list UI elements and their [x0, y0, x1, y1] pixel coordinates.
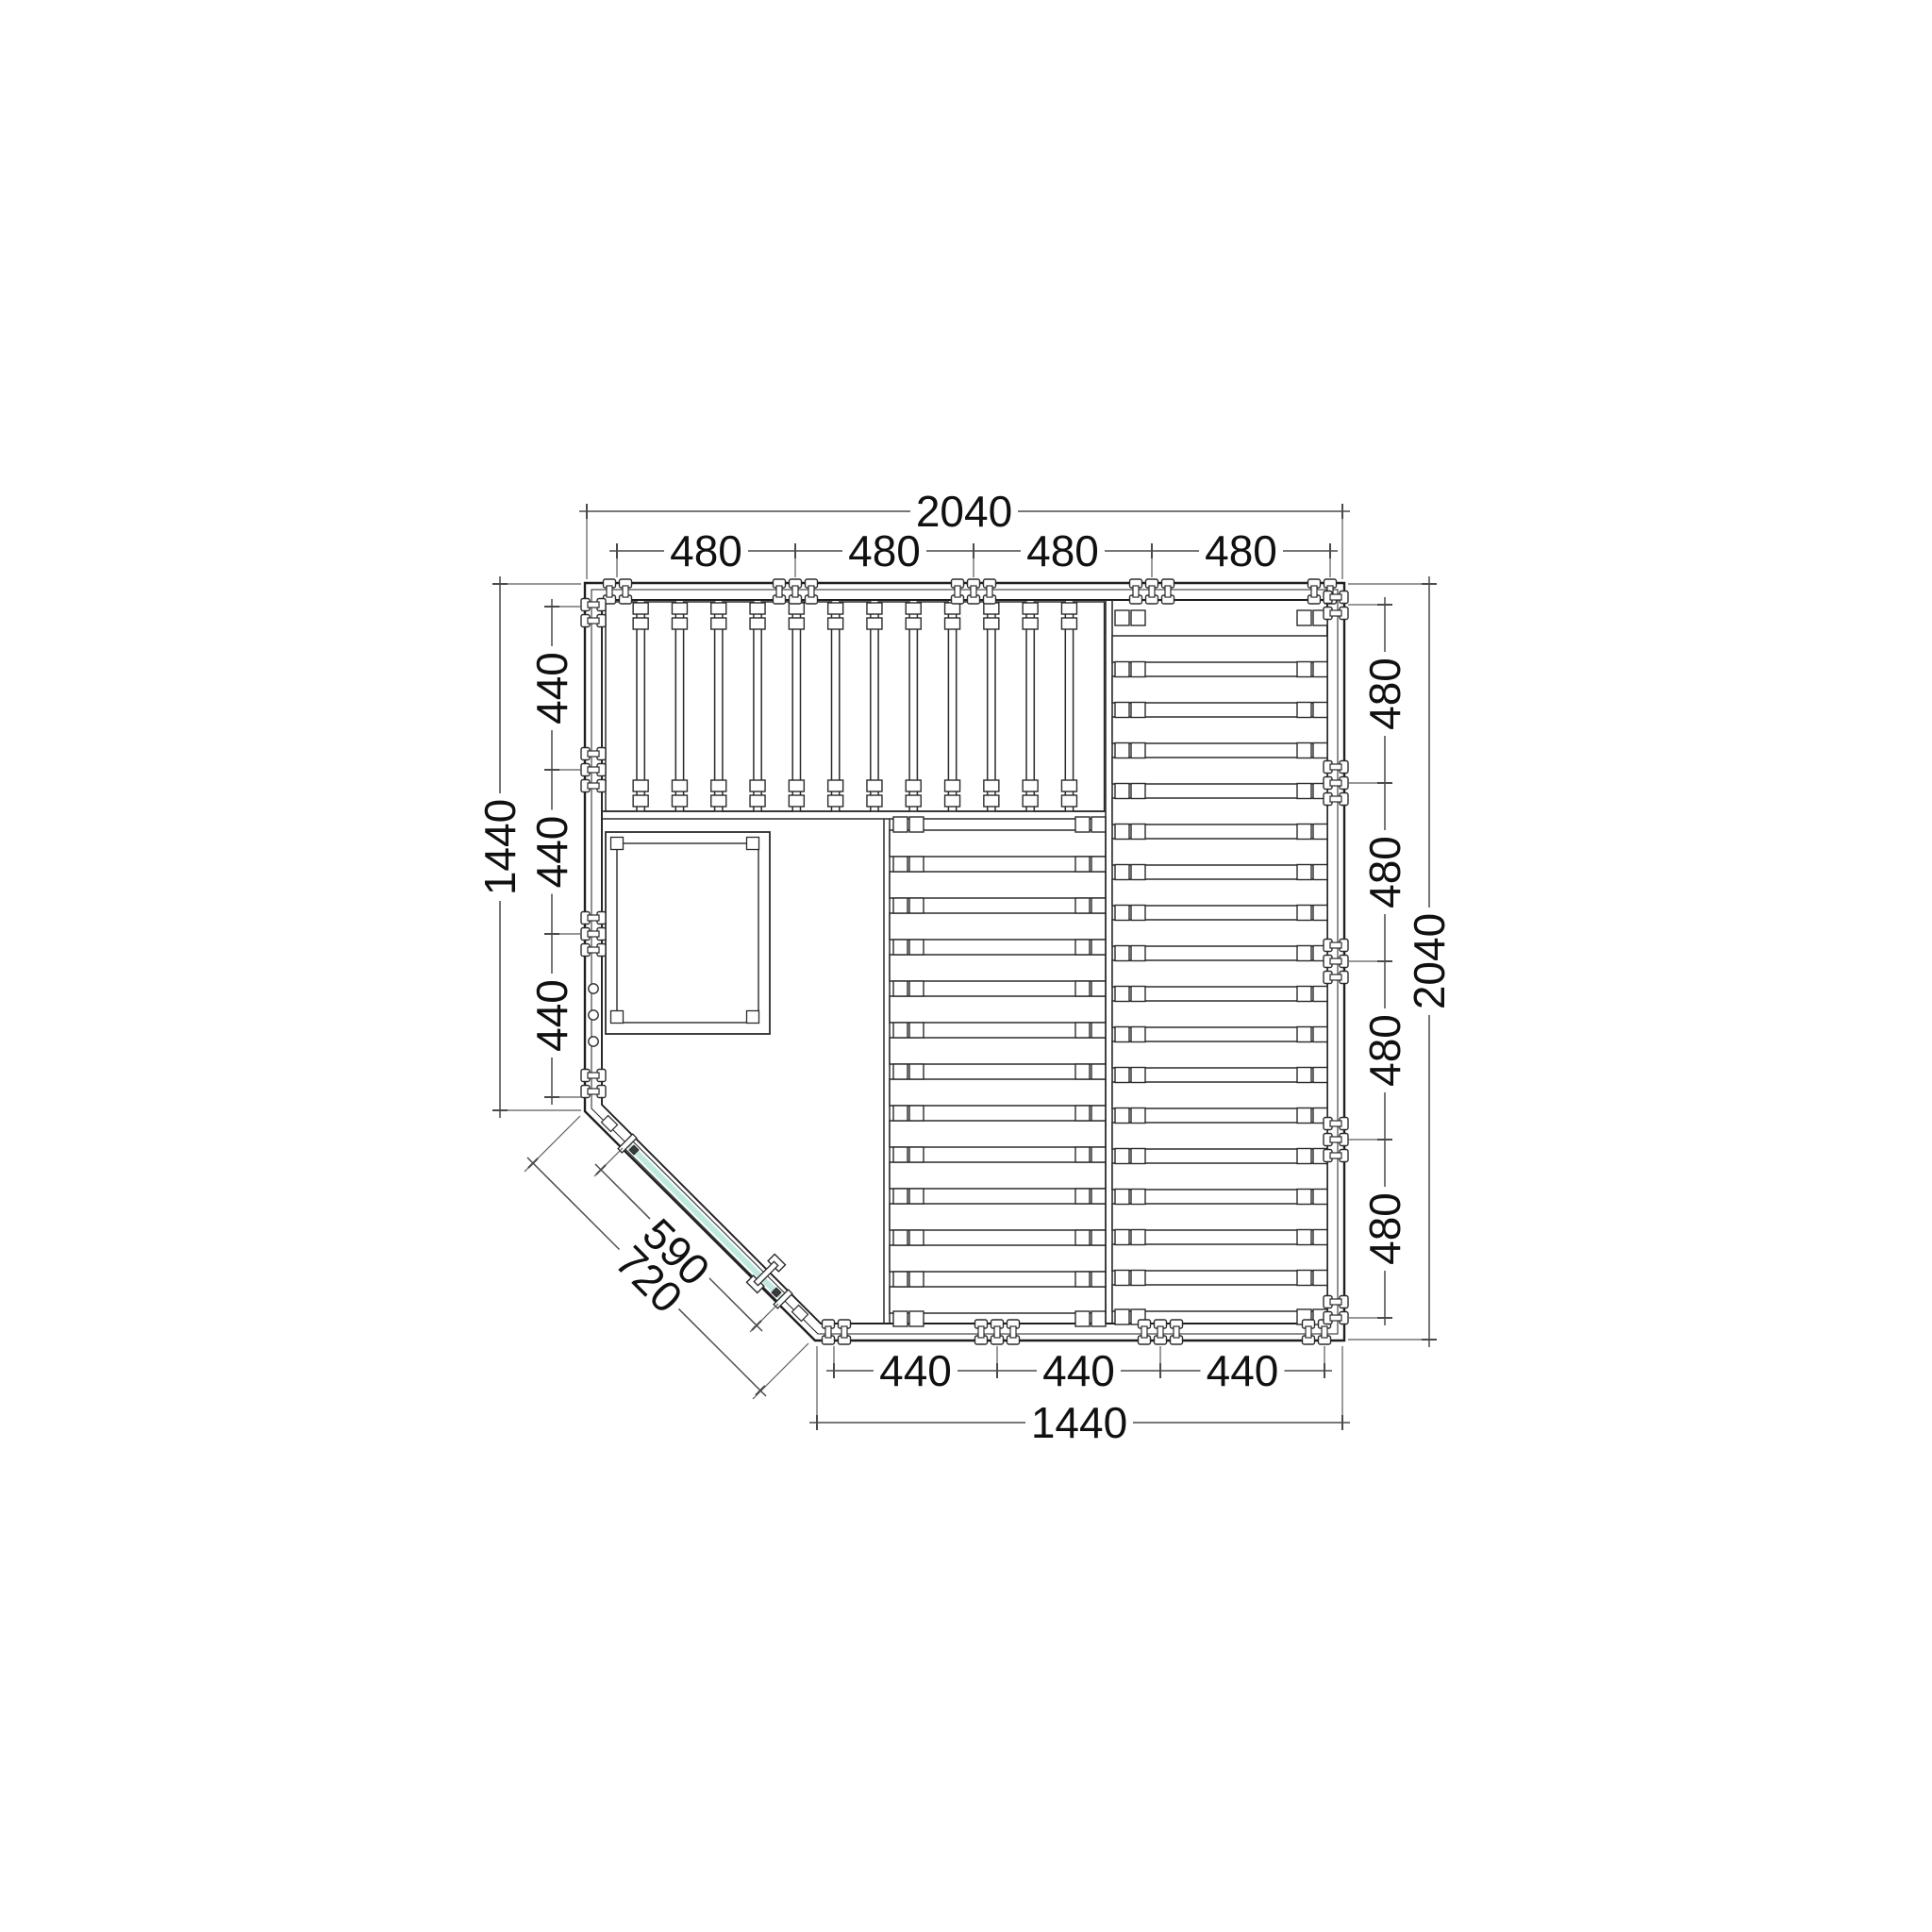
board-spacer	[906, 780, 921, 791]
bench-board	[890, 955, 1106, 981]
bench-board	[1112, 1163, 1327, 1190]
board-spacer	[828, 618, 843, 629]
bench-board	[1112, 1001, 1327, 1027]
dim-label: 440	[1207, 1346, 1279, 1395]
board-spacer	[1297, 1190, 1311, 1205]
board-spacer	[1075, 940, 1090, 955]
clamp-body	[588, 618, 599, 624]
board-spacer	[1091, 817, 1106, 832]
clamp-body	[1311, 586, 1317, 597]
bench-board	[890, 872, 1106, 898]
bench-board	[1112, 758, 1327, 784]
board-spacer	[789, 780, 804, 791]
board-spacer	[1091, 1023, 1106, 1038]
board-spacer	[1075, 1311, 1090, 1326]
bench-board	[606, 602, 637, 811]
board-spacer	[1131, 946, 1145, 961]
clamp-body	[792, 586, 798, 597]
bench-board	[957, 602, 988, 811]
dim-label-group: 440	[1201, 1346, 1285, 1395]
board-spacer	[1131, 865, 1145, 880]
board-spacer	[1313, 987, 1327, 1002]
board-spacer	[909, 1147, 924, 1162]
board-spacer	[828, 603, 843, 614]
board-spacer	[984, 795, 999, 807]
dim-label-group: 440	[527, 974, 576, 1058]
board-spacer	[789, 603, 804, 614]
board-spacer	[1297, 703, 1311, 718]
board-spacer	[1091, 1064, 1106, 1079]
bench-board	[1112, 717, 1327, 743]
board-spacer	[893, 1189, 908, 1204]
clamp-body	[588, 947, 599, 953]
board-spacer	[1061, 618, 1076, 629]
board-spacer	[1023, 795, 1038, 807]
board-spacer	[1115, 662, 1129, 677]
clamp-body	[994, 1326, 1000, 1338]
dim-label: 480	[670, 526, 742, 575]
board-spacer	[909, 1023, 924, 1038]
board-spacer	[1297, 1149, 1311, 1164]
bench-board	[1112, 1041, 1327, 1068]
board-spacer	[750, 780, 765, 791]
board-spacer	[1075, 1064, 1090, 1079]
board-spacer	[750, 603, 765, 614]
bench-board	[1112, 1204, 1327, 1230]
board-spacer	[1061, 603, 1076, 614]
clamp-body	[588, 783, 599, 789]
bench-board	[1112, 839, 1327, 865]
bench-board	[878, 602, 909, 811]
circle-hole-icon	[589, 984, 598, 993]
board-spacer	[1297, 865, 1311, 880]
clamp-body	[1330, 1299, 1341, 1305]
clamp-body	[1330, 764, 1341, 770]
board-spacer	[1131, 1190, 1145, 1205]
board-spacer	[1091, 1230, 1106, 1245]
board-spacer	[1131, 703, 1145, 718]
dim-label: 1440	[475, 799, 525, 895]
clamp-body	[1306, 1326, 1311, 1338]
board-spacer	[867, 795, 882, 807]
bench-board	[684, 602, 715, 811]
board-spacer	[1075, 1023, 1090, 1038]
board-spacer	[1131, 743, 1145, 758]
board-spacer	[1023, 618, 1038, 629]
dim-label-group: 480	[664, 526, 748, 575]
blueprint-page: 2040480480480480144044044044048048048048…	[0, 0, 1932, 1932]
circle-hole-icon	[589, 1010, 598, 1020]
board-spacer	[1297, 824, 1311, 840]
dim-label-group: 2040	[1405, 908, 1454, 1015]
board-spacer	[893, 981, 908, 996]
board-spacer	[1115, 865, 1129, 880]
board-spacer	[909, 940, 924, 955]
board-spacer	[1297, 946, 1311, 961]
bench-board	[840, 602, 871, 811]
board-spacer	[711, 603, 726, 614]
dim-label: 440	[1042, 1346, 1115, 1395]
board-spacer	[1061, 780, 1076, 791]
board-spacer	[1061, 795, 1076, 807]
clamp-body	[1010, 1326, 1016, 1338]
board-spacer	[1313, 743, 1327, 758]
bench-board	[890, 1079, 1106, 1106]
clamp-body	[588, 602, 599, 608]
board-spacer	[909, 981, 924, 996]
bench-board	[1112, 636, 1327, 662]
heater-corner-bracket	[611, 838, 624, 850]
board-spacer	[789, 795, 804, 807]
clamp-body	[1330, 958, 1341, 964]
bench-board	[890, 1245, 1106, 1272]
bench-board	[644, 602, 675, 811]
dim-label: 440	[527, 652, 576, 724]
board-spacer	[1131, 987, 1145, 1002]
clamp-body	[1174, 1326, 1179, 1338]
board-spacer	[1115, 987, 1129, 1002]
board-spacer	[867, 618, 882, 629]
dim-label-group: 480	[842, 526, 926, 575]
board-spacer	[1131, 784, 1145, 799]
bench-board	[1112, 1244, 1327, 1271]
board-spacer	[1297, 906, 1311, 921]
board-spacer	[984, 780, 999, 791]
dim-label: 480	[1360, 1014, 1409, 1087]
board-spacer	[1313, 1271, 1327, 1286]
bench-board	[1112, 676, 1327, 703]
board-spacer	[1115, 1230, 1129, 1245]
clamp-body	[987, 586, 992, 597]
heater-corner-bracket	[747, 838, 759, 850]
dim-label-group: 480	[1360, 830, 1409, 914]
board-spacer	[1091, 981, 1106, 996]
board-spacer	[893, 1230, 908, 1245]
board-spacer	[1297, 662, 1311, 677]
board-spacer	[1313, 1027, 1327, 1042]
clamp-body	[1141, 1326, 1147, 1338]
clamp-body	[1165, 586, 1171, 597]
board-spacer	[1131, 1149, 1145, 1164]
board-spacer	[1091, 857, 1106, 872]
board-spacer	[828, 780, 843, 791]
clamp-body	[971, 586, 976, 597]
board-spacer	[893, 940, 908, 955]
board-spacer	[1075, 1230, 1090, 1245]
board-spacer	[1075, 1106, 1090, 1121]
board-spacer	[945, 795, 960, 807]
board-spacer	[672, 603, 687, 614]
clamp-body	[588, 1073, 599, 1078]
board-spacer	[893, 1023, 908, 1038]
board-spacer	[984, 603, 999, 614]
dim-label-group: 480	[1360, 652, 1409, 736]
dim-label-group: 2040	[910, 487, 1018, 536]
board-spacer	[1297, 1027, 1311, 1042]
clamp-body	[1330, 1315, 1341, 1321]
board-spacer	[909, 1311, 924, 1326]
board-spacer	[1023, 780, 1038, 791]
clamp-body	[1330, 796, 1341, 802]
board-spacer	[945, 618, 960, 629]
circle-hole-icon	[589, 1037, 598, 1046]
dim-label-group: 440	[1037, 1346, 1121, 1395]
board-spacer	[1075, 1189, 1090, 1204]
bench-board	[890, 830, 1106, 857]
clamp-body	[841, 1326, 847, 1338]
board-spacer	[906, 795, 921, 807]
clamp-body	[955, 586, 960, 597]
board-spacer	[1075, 898, 1090, 913]
board-spacer	[1115, 1149, 1129, 1164]
bench-board	[1034, 602, 1065, 811]
clamp-body	[1158, 1326, 1163, 1338]
clamp-body	[1330, 942, 1341, 948]
bench-board	[995, 602, 1026, 811]
board-spacer	[1297, 743, 1311, 758]
bench-board	[890, 996, 1106, 1023]
board-spacer	[1131, 1271, 1145, 1286]
dim-label: 2040	[1405, 913, 1454, 1009]
board-spacer	[1297, 784, 1311, 799]
bench-board	[801, 602, 832, 811]
board-spacer	[1091, 1189, 1106, 1204]
board-spacer	[633, 603, 648, 614]
dim-label: 480	[1360, 1192, 1409, 1265]
bench-board	[1112, 920, 1327, 946]
bench-board	[1112, 1285, 1327, 1311]
clamp-body	[1330, 974, 1341, 980]
board-spacer	[1297, 1271, 1311, 1286]
board-spacer	[909, 1272, 924, 1287]
dim-label-group: 1440	[1025, 1398, 1133, 1447]
board-spacer	[633, 780, 648, 791]
board-spacer	[1075, 817, 1090, 832]
board-spacer	[672, 795, 687, 807]
board-spacer	[1115, 1027, 1129, 1042]
dim-label: 480	[1026, 526, 1099, 575]
clamp-body	[1330, 610, 1341, 616]
board-spacer	[906, 618, 921, 629]
board-spacer	[893, 1064, 908, 1079]
board-spacer	[1297, 987, 1311, 1002]
board-spacer	[1115, 703, 1129, 718]
board-spacer	[1091, 940, 1106, 955]
board-spacer	[1131, 1027, 1145, 1042]
board-spacer	[1115, 1271, 1129, 1286]
dim-label: 440	[879, 1346, 952, 1395]
board-spacer	[867, 780, 882, 791]
board-spacer	[633, 618, 648, 629]
board-spacer	[1313, 1230, 1327, 1245]
dim-label: 2040	[916, 487, 1012, 536]
dim-label: 1440	[1031, 1398, 1127, 1447]
clamp-body	[607, 586, 612, 597]
clamp-body	[588, 767, 599, 773]
board-spacer	[1115, 1108, 1129, 1124]
board-spacer	[893, 1311, 908, 1326]
clamp-body	[1330, 594, 1341, 600]
board-spacer	[1115, 1190, 1129, 1205]
clamp-body	[776, 586, 782, 597]
dim-label-group: 480	[1360, 1187, 1409, 1271]
dim-label: 480	[1360, 836, 1409, 908]
clamp-body	[588, 931, 599, 937]
bench-board	[1112, 960, 1327, 987]
board-spacer	[909, 817, 924, 832]
bench-board	[917, 602, 948, 811]
board-spacer	[1131, 662, 1145, 677]
board-spacer	[1115, 1309, 1129, 1324]
board-spacer	[893, 857, 908, 872]
bench-board	[890, 1038, 1106, 1064]
clamp-body	[1322, 1326, 1327, 1338]
board-spacer	[1131, 906, 1145, 921]
clamp-body	[1330, 1121, 1341, 1126]
board-spacer	[672, 618, 687, 629]
dim-label-group: 440	[527, 646, 576, 730]
heater-corner-bracket	[611, 1011, 624, 1024]
board-spacer	[1297, 1068, 1311, 1083]
board-spacer	[893, 898, 908, 913]
board-spacer	[1023, 603, 1038, 614]
board-spacer	[1131, 824, 1145, 840]
board-spacer	[1115, 1068, 1129, 1083]
board-spacer	[1115, 784, 1129, 799]
board-spacer	[1075, 857, 1090, 872]
board-spacer	[1115, 610, 1129, 625]
board-spacer	[1075, 1147, 1090, 1162]
board-spacer	[1313, 1068, 1327, 1083]
board-spacer	[1075, 981, 1090, 996]
board-spacer	[909, 1064, 924, 1079]
board-spacer	[867, 603, 882, 614]
bench-board	[1112, 798, 1327, 824]
dim-label-group: 440	[874, 1346, 958, 1395]
board-spacer	[1131, 610, 1145, 625]
board-spacer	[1297, 610, 1311, 625]
board-spacer	[1075, 1272, 1090, 1287]
board-spacer	[1297, 1230, 1311, 1245]
board-spacer	[711, 618, 726, 629]
board-spacer	[1313, 703, 1327, 718]
dim-label: 480	[1205, 526, 1277, 575]
board-spacer	[750, 618, 765, 629]
board-spacer	[1091, 1147, 1106, 1162]
bench-board	[1112, 1082, 1327, 1108]
board-spacer	[750, 795, 765, 807]
clamp-body	[808, 586, 814, 597]
dim-label-group: 1440	[475, 793, 525, 901]
dim-label-group: 480	[1360, 1008, 1409, 1092]
floor-plan-drawing: 2040480480480480144044044044048048048048…	[0, 0, 1932, 1932]
board-spacer	[1091, 898, 1106, 913]
bench-board	[890, 1162, 1106, 1189]
board-spacer	[984, 618, 999, 629]
clamp-body	[588, 915, 599, 921]
board-spacer	[909, 1189, 924, 1204]
board-spacer	[945, 603, 960, 614]
board-spacer	[945, 780, 960, 791]
dim-label: 440	[527, 816, 576, 889]
bench-board	[1112, 1123, 1327, 1149]
clamp-body	[1149, 586, 1155, 597]
board-spacer	[1115, 946, 1129, 961]
clamp-body	[978, 1326, 984, 1338]
bench-board	[1074, 602, 1105, 811]
clamp-body	[623, 586, 628, 597]
board-spacer	[1115, 906, 1129, 921]
bench-board	[890, 1121, 1106, 1147]
dim-label-group: 440	[527, 810, 576, 894]
board-spacer	[909, 1106, 924, 1121]
board-spacer	[1313, 906, 1327, 921]
clamp-body	[825, 1326, 831, 1338]
bench-board	[890, 1204, 1106, 1230]
dim-label: 480	[1360, 658, 1409, 730]
board-spacer	[711, 780, 726, 791]
board-spacer	[828, 795, 843, 807]
bench-board	[890, 913, 1106, 940]
board-spacer	[1131, 1230, 1145, 1245]
board-spacer	[906, 603, 921, 614]
heater-corner-bracket	[747, 1011, 759, 1024]
board-spacer	[1313, 824, 1327, 840]
clamp-body	[1330, 1153, 1341, 1158]
dim-label: 480	[848, 526, 921, 575]
board-spacer	[1091, 1311, 1106, 1326]
board-spacer	[1131, 1068, 1145, 1083]
board-spacer	[1313, 1190, 1327, 1205]
board-spacer	[633, 795, 648, 807]
bench-board	[1112, 879, 1327, 906]
board-spacer	[1313, 865, 1327, 880]
board-spacer	[1131, 1108, 1145, 1124]
bench-board	[761, 602, 792, 811]
board-spacer	[1297, 1108, 1311, 1124]
board-spacer	[1091, 1272, 1106, 1287]
clamp-body	[1133, 586, 1139, 597]
board-spacer	[1115, 824, 1129, 840]
board-spacer	[1313, 662, 1327, 677]
board-spacer	[1115, 743, 1129, 758]
clamp-body	[588, 751, 599, 757]
clamp-body	[1330, 1137, 1341, 1142]
board-spacer	[909, 898, 924, 913]
board-spacer	[909, 1230, 924, 1245]
board-spacer	[909, 857, 924, 872]
board-spacer	[893, 1106, 908, 1121]
board-spacer	[672, 780, 687, 791]
board-spacer	[893, 1147, 908, 1162]
bench-board	[890, 1287, 1106, 1313]
clamp-body	[1330, 780, 1341, 786]
dim-label-group: 480	[1021, 526, 1105, 575]
board-spacer	[1091, 1106, 1106, 1121]
board-spacer	[789, 618, 804, 629]
dim-label: 440	[527, 979, 576, 1052]
board-spacer	[711, 795, 726, 807]
board-spacer	[893, 1272, 908, 1287]
clamp-body	[588, 1089, 599, 1094]
board-spacer	[893, 817, 908, 832]
dim-label-group: 480	[1199, 526, 1283, 575]
bench-board	[723, 602, 754, 811]
